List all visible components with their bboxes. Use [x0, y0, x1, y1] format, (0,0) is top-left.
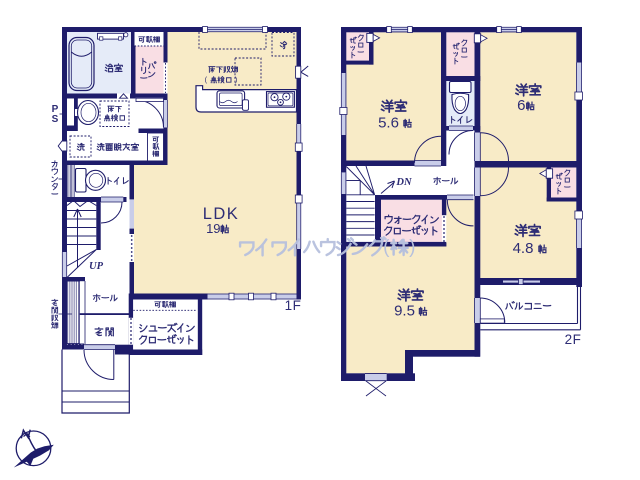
svg-text:6: 6	[517, 97, 525, 114]
svg-text:2F: 2F	[565, 332, 582, 347]
svg-text:UP: UP	[89, 261, 104, 272]
svg-text:19: 19	[206, 221, 220, 236]
svg-text:(: (	[383, 237, 390, 258]
svg-text:9.5: 9.5	[394, 303, 415, 320]
svg-text:S: S	[52, 114, 59, 125]
svg-text:): )	[235, 75, 237, 84]
svg-text:5.6: 5.6	[378, 115, 399, 132]
svg-text:): )	[409, 237, 415, 258]
svg-text:1F: 1F	[285, 298, 302, 313]
svg-text:DN: DN	[395, 177, 412, 188]
svg-text:4.8: 4.8	[513, 240, 534, 257]
